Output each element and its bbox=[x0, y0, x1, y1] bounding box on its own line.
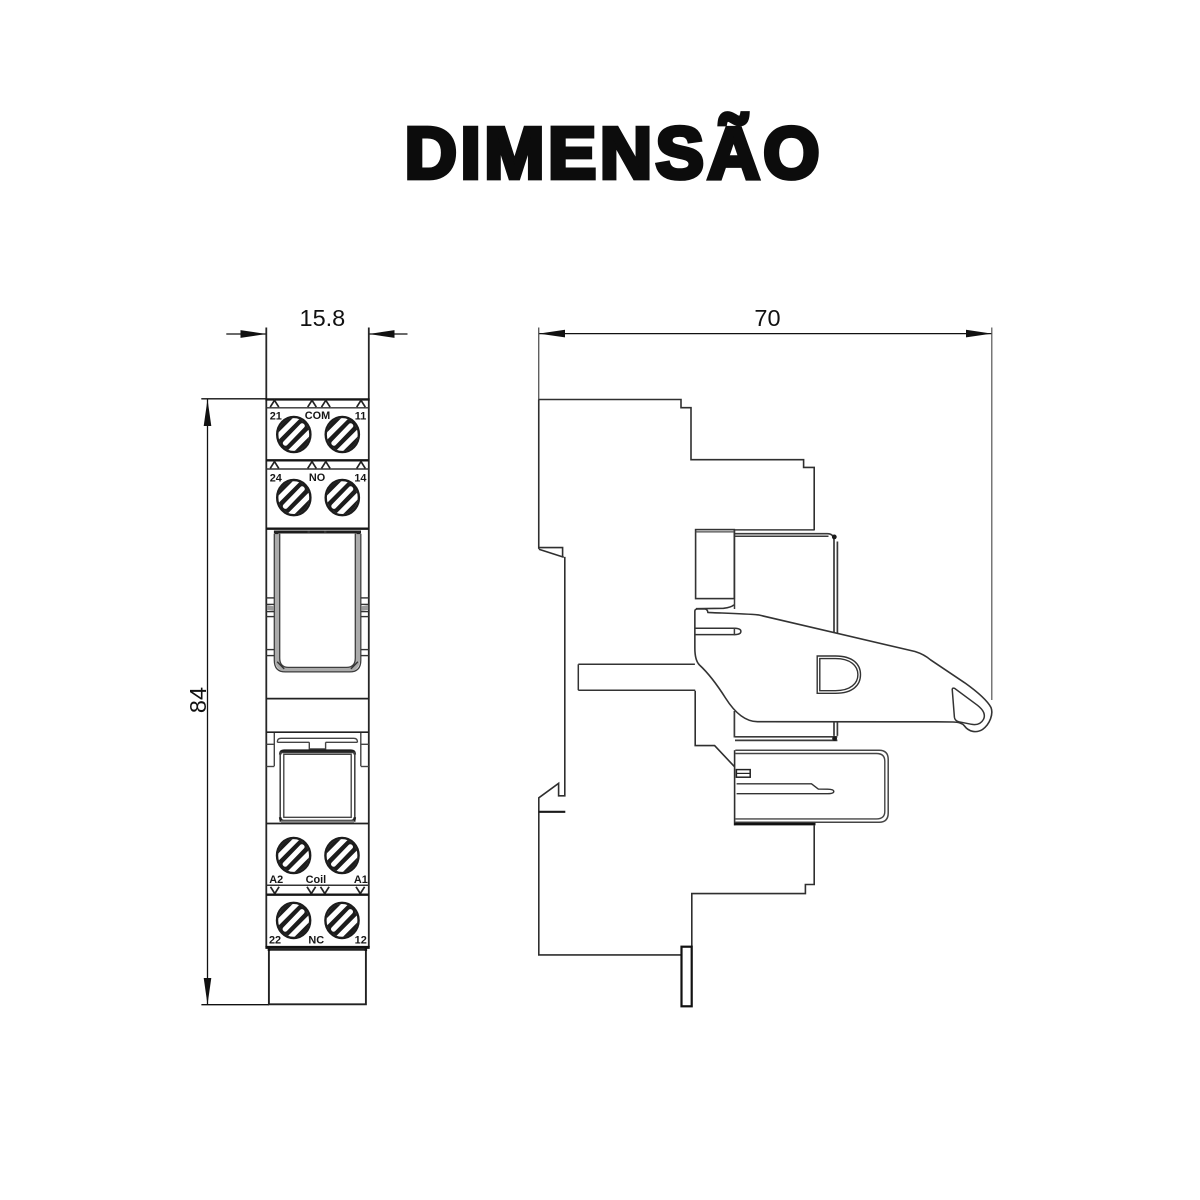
svg-text:14: 14 bbox=[354, 472, 366, 484]
svg-text:12: 12 bbox=[355, 935, 367, 947]
svg-text:Coil: Coil bbox=[306, 874, 327, 886]
svg-text:21: 21 bbox=[270, 411, 282, 423]
svg-text:A2: A2 bbox=[269, 874, 283, 886]
svg-text:NO: NO bbox=[309, 472, 326, 484]
svg-text:70: 70 bbox=[754, 305, 780, 331]
svg-text:A1: A1 bbox=[354, 874, 368, 886]
svg-text:NC: NC bbox=[308, 934, 324, 946]
svg-text:22: 22 bbox=[269, 935, 281, 947]
svg-text:84: 84 bbox=[185, 687, 211, 713]
svg-text:15.8: 15.8 bbox=[300, 305, 346, 331]
svg-text:11: 11 bbox=[355, 411, 367, 423]
svg-text:24: 24 bbox=[270, 472, 282, 484]
svg-text:COM: COM bbox=[305, 410, 330, 422]
svg-text:DIMENSÃO: DIMENSÃO bbox=[405, 113, 823, 194]
